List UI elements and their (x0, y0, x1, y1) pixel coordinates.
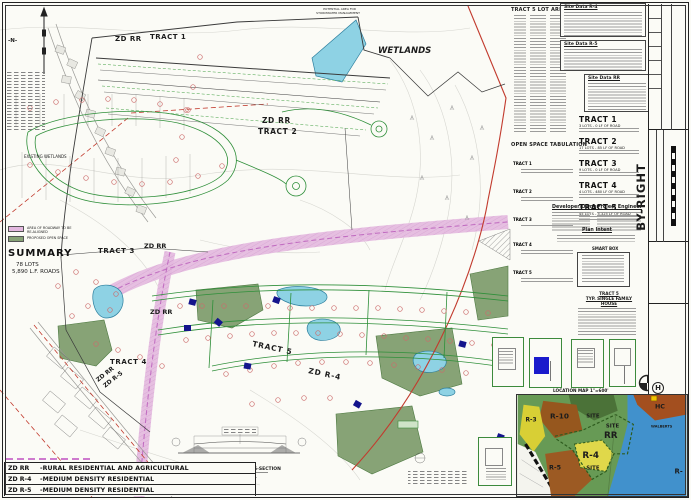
site-data-r4-title: Site Data R-4 (564, 5, 642, 10)
map-label-r3: R-3 (526, 417, 537, 423)
tract-stat-notes (579, 128, 639, 133)
map-label-site-b: SITE (606, 423, 620, 429)
detail-box-3 (571, 339, 604, 388)
tract-stat-notes (579, 194, 639, 199)
wetlands-label: WETLANDS (378, 46, 431, 56)
map-icon-marker (651, 396, 657, 401)
house-footprint-sketch (485, 448, 503, 466)
open-space-title: OPEN SPACE TABULATION (511, 142, 587, 148)
zoning-legend: ZD RR -RURAL RESIDENTIAL AND AGRICULTURA… (4, 462, 256, 496)
site-data-rr-title: Site Data RR (588, 76, 646, 81)
open-space-swatch (8, 236, 24, 242)
tract-stat-notes (579, 150, 639, 155)
zoning-code: ZD R-4 (8, 476, 40, 483)
house-footprint-sketch (614, 348, 631, 366)
zoning-desc: -MEDIUM DENSITY RESIDENTIAL (40, 487, 154, 494)
map-label-r-clip: R- (675, 467, 683, 475)
site-data-r5-title: Site Data R-5 (564, 42, 642, 47)
zoning-code: ZD RR (8, 465, 40, 472)
plan-intent-block: Plan Intent (557, 228, 637, 243)
open-space-detail (521, 250, 573, 256)
zoning-desc: -MEDIUM DENSITY RESIDENTIAL (40, 476, 154, 483)
house-detail-title-2: TYP. SINGLE FAMILY HOUSE (578, 296, 640, 306)
lot-areas-list-col1 (514, 15, 526, 133)
developer-title: Developer/Owner (552, 205, 594, 210)
site-data-rr-box: Site Data RR (584, 74, 650, 112)
lot-areas-list-col2 (530, 15, 546, 133)
revision-block (649, 4, 688, 130)
hanover-logo-icon: H (652, 382, 664, 394)
summary-title: SUMMARY (8, 248, 128, 259)
open-space-tract: TRACT 5 (513, 270, 532, 275)
plan-intent-title: Plan Intent (557, 228, 637, 233)
by-right-title: BY-RIGHT (634, 142, 648, 252)
tract-stat-item: TRACT 1 3 LOTS - 0 LF OF ROAD (579, 115, 649, 133)
left-notes-block (7, 72, 45, 130)
site-data-r5-table (564, 49, 642, 70)
tract5-label: TRACT 5 (252, 339, 294, 356)
summary-roads: 5,890 L.F. ROADS (12, 269, 128, 275)
tract3-zone-label: ZD RR (144, 242, 166, 250)
open-space-key-row: PROPOSED OPEN SPACE (8, 236, 128, 242)
hatched-area (479, 229, 510, 260)
realign-key-row: AREA OF ROADWAY TO BE RE-ALIGNED (8, 226, 128, 234)
location-map: R-3 R-10 SITE SITE RR R-4 SITE R-5 HC WA… (516, 394, 688, 497)
house-detail-notes (578, 308, 636, 336)
detail-box-5 (478, 437, 512, 486)
zoning-code: ZD R-5 (8, 487, 40, 494)
tract-stat-name: TRACT 1 (579, 115, 649, 124)
center-zone-label: ZD RR (150, 308, 172, 316)
tract2-label: TRACT 2 (258, 127, 297, 136)
site-data-r4-box: Site Data R-4 (560, 3, 646, 37)
graphic-scale-bar (671, 146, 676, 226)
smart-box-detail (577, 252, 630, 287)
tract1-zone-label: ZD RR (115, 35, 142, 43)
plan-sheet: -N- ZD RR TRACT 1 ZD RR TRACT 2 WETLANDS… (0, 0, 691, 500)
open-space-detail (521, 169, 573, 175)
map-label-r10: R-10 (550, 412, 569, 421)
north-label: -N- (8, 38, 17, 44)
tract2-zone-label: ZD RR (262, 116, 291, 125)
plan-intent-text (557, 235, 635, 243)
tract-stat-notes (579, 172, 639, 177)
open-space-tract: TRACT 2 (513, 189, 532, 194)
site-data-r5-box: Site Data R-5 (560, 40, 646, 71)
sketch-lines (486, 468, 506, 480)
tract1-label: TRACT 1 (150, 33, 186, 41)
location-map-caption: LOCATION MAP 1"=600' (553, 388, 609, 393)
detail-box-2 (529, 338, 562, 388)
realign-label-2: RE-ALIGNED (27, 230, 48, 234)
map-label-site-a: SITE (586, 414, 600, 420)
open-space-tract: TRACT 1 (513, 161, 532, 166)
stormwater-note-line2: STORMWATER MANAGEMENT (316, 11, 360, 15)
driveway-sketch (550, 361, 558, 381)
open-space-tract: TRACT 4 (513, 242, 532, 247)
township-block (649, 242, 688, 304)
zoning-legend-row: ZD R-4 -MEDIUM DENSITY RESIDENTIAL (5, 474, 255, 485)
open-space-detail (521, 197, 573, 203)
tract5-zone-label: ZD R-4 (308, 366, 342, 382)
map-label-r4: R-4 (582, 451, 599, 461)
tract4-label: TRACT 4 (110, 358, 147, 366)
sketch-lines (578, 350, 593, 364)
driveway-sketch (624, 366, 630, 384)
map-label-site-c: SITE (586, 466, 600, 472)
north-arrow-icon (41, 8, 47, 74)
site-data-r4-table (564, 12, 642, 36)
map-label-hc: HC (655, 403, 665, 411)
sketch-lines (499, 351, 513, 365)
detail-box-4 (609, 339, 636, 387)
house-detail-block: TRACT 5 TYP. SINGLE FAMILY HOUSE (578, 291, 640, 336)
title-strip: H (648, 4, 687, 394)
zoning-desc: -RURAL RESIDENTIAL AND AGRICULTURAL (40, 465, 189, 472)
plan-key: AREA OF ROADWAY TO BE RE-ALIGNED PROPOSE… (8, 226, 128, 275)
existing-wetlands-label: EXISTING WETLANDS (24, 154, 67, 159)
wetland-symbols (410, 105, 484, 220)
open-space-label: PROPOSED OPEN SPACE (27, 236, 68, 240)
zoning-legend-row: ZD RR -RURAL RESIDENTIAL AND AGRICULTURA… (5, 463, 255, 474)
map-label-walberts: WALBERTS (651, 424, 673, 428)
zoning-legend-row: ZD R-5 -MEDIUM DENSITY RESIDENTIAL (5, 485, 255, 496)
map-label-rr: RR (604, 431, 618, 441)
plan-title-block (649, 130, 688, 242)
map-label-r5: R-5 (549, 464, 561, 472)
detail-box-1 (492, 337, 524, 387)
summary-lots: 78 LOTS (16, 262, 128, 268)
site-data-rr-table (588, 83, 646, 111)
firm-block: H (649, 304, 688, 394)
realign-swatch (8, 226, 24, 232)
open-space-tract: TRACT 3 (513, 217, 532, 222)
smart-box-list (582, 255, 624, 283)
blue-house-footprint (534, 357, 549, 374)
open-space-detail (521, 278, 573, 284)
smart-box-title: SMART BOX (592, 246, 618, 251)
